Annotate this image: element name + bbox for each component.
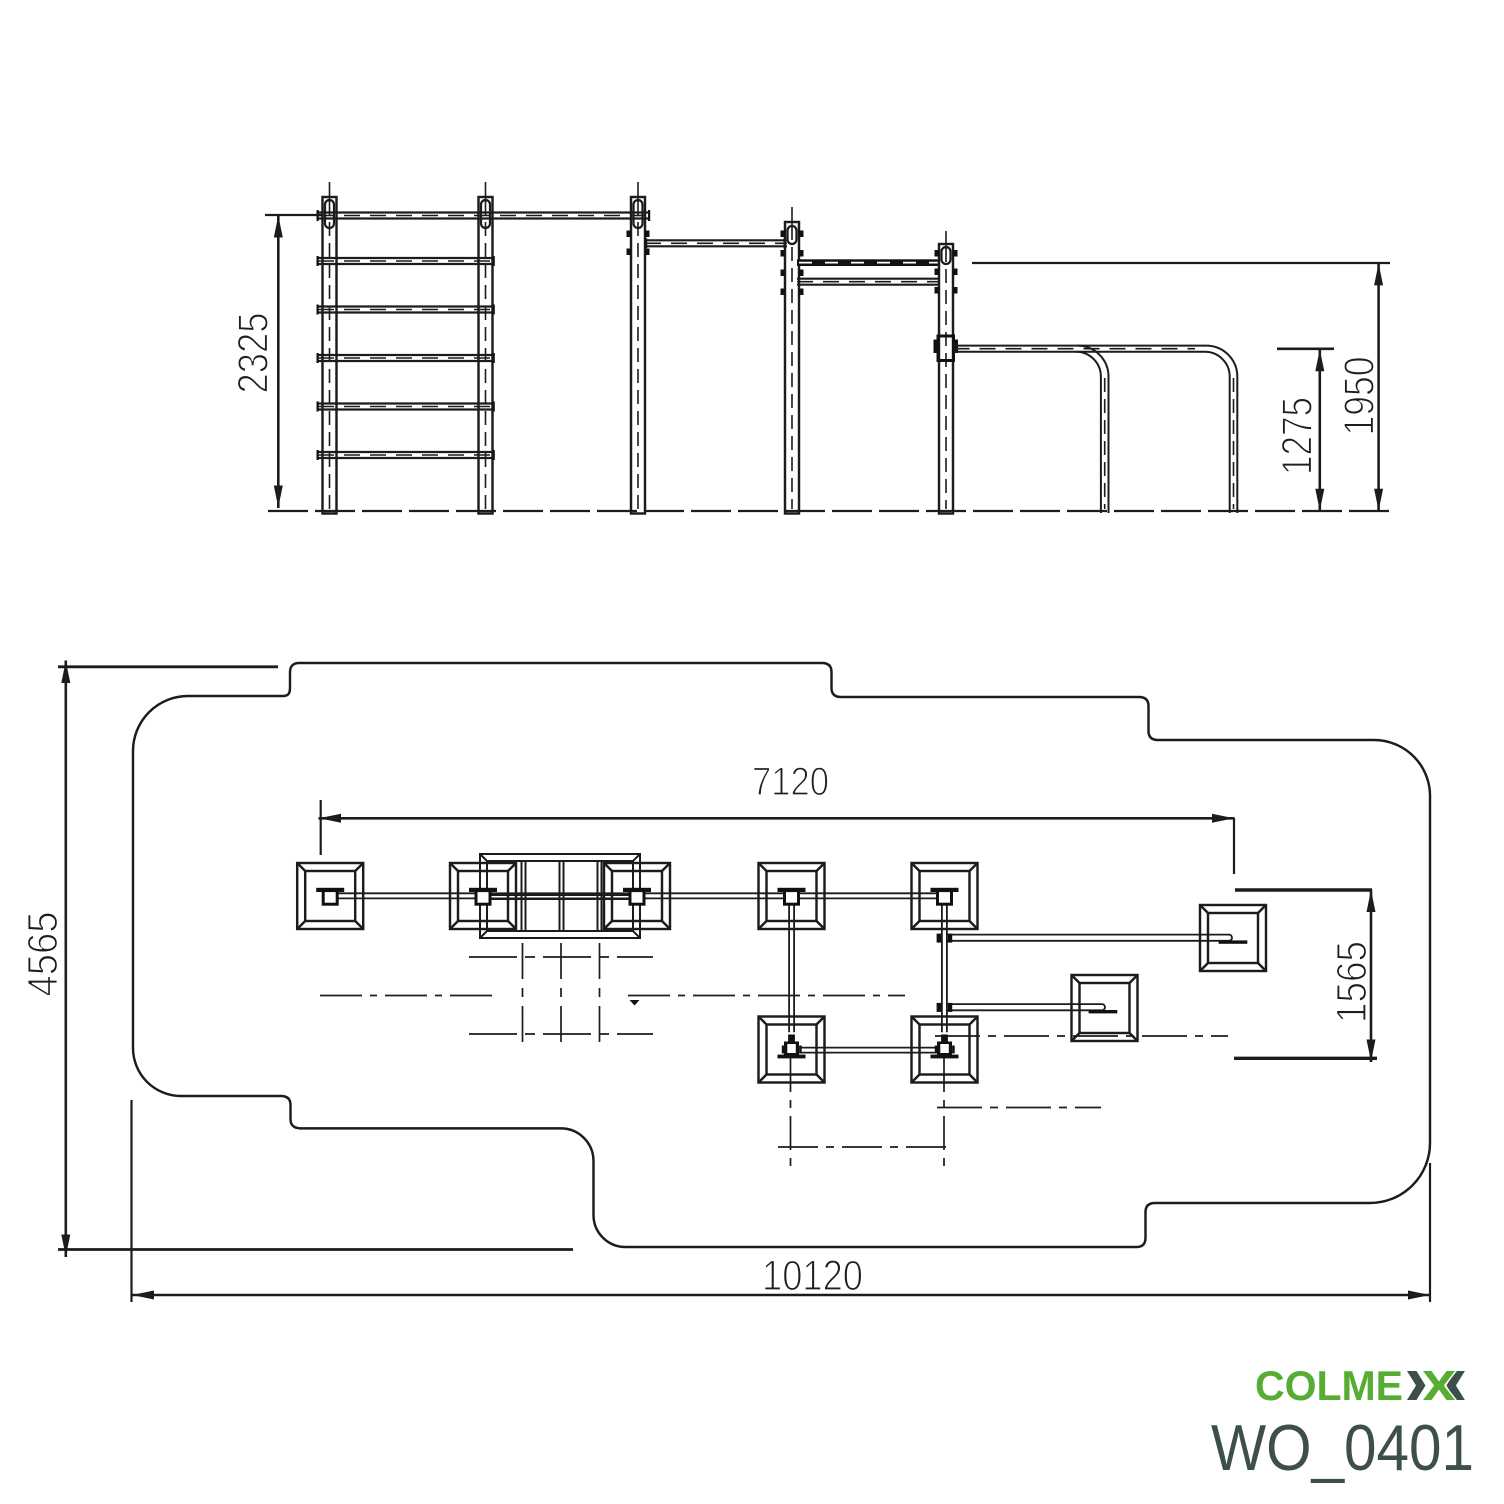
svg-text:4565: 4565 <box>19 912 67 997</box>
svg-text:2325: 2325 <box>230 313 278 394</box>
svg-text:7120: 7120 <box>752 760 829 804</box>
svg-text:COLME: COLME <box>1255 1362 1403 1409</box>
svg-text:1950: 1950 <box>1336 357 1384 436</box>
svg-text:WO_0401: WO_0401 <box>1211 1411 1474 1484</box>
svg-text:1275: 1275 <box>1274 397 1322 475</box>
svg-text:10120: 10120 <box>762 1252 863 1300</box>
svg-text:1565: 1565 <box>1328 941 1376 1023</box>
